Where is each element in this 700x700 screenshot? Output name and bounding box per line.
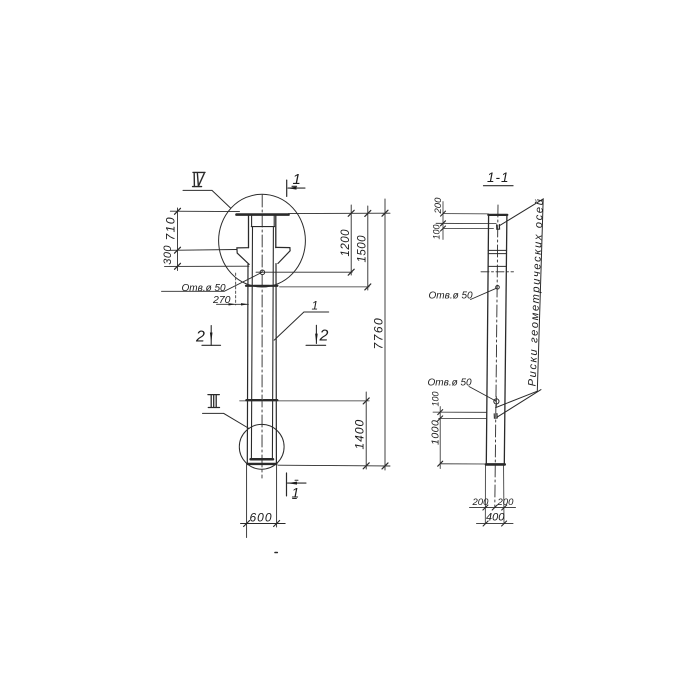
svg-text:400: 400 <box>486 512 505 524</box>
svg-text:2: 2 <box>319 328 329 345</box>
svg-text:1000: 1000 <box>430 420 442 445</box>
svg-text:7760: 7760 <box>372 317 386 350</box>
svg-text:Отв.ø 50: Отв.ø 50 <box>428 378 473 389</box>
svg-text:710: 710 <box>164 216 178 241</box>
svg-text:Риски геометрических осей: Риски геометрических осей <box>527 197 547 386</box>
svg-text:200: 200 <box>433 197 444 215</box>
svg-text:Отв.ø 50: Отв.ø 50 <box>429 291 474 302</box>
svg-text:1400: 1400 <box>353 419 367 450</box>
svg-text:100: 100 <box>432 224 442 239</box>
svg-text:100: 100 <box>431 391 441 406</box>
svg-text:1: 1 <box>293 171 301 188</box>
svg-text:200: 200 <box>472 497 490 508</box>
svg-text:200: 200 <box>497 497 515 508</box>
svg-text:Отв.ø 50: Отв.ø 50 <box>182 283 227 294</box>
svg-text:1: 1 <box>312 299 319 313</box>
svg-text:1500: 1500 <box>357 235 369 263</box>
svg-text:600: 600 <box>250 511 273 525</box>
svg-text:2: 2 <box>195 328 205 345</box>
svg-text:1200: 1200 <box>340 229 352 257</box>
svg-text:300: 300 <box>162 245 174 265</box>
svg-text:1-1: 1-1 <box>487 170 510 185</box>
